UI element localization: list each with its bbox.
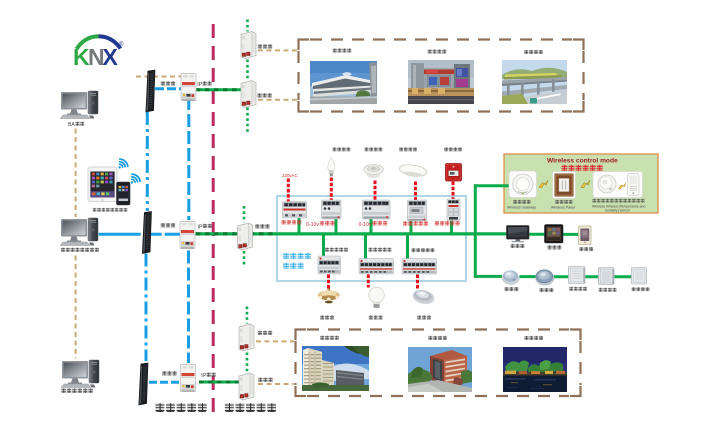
svg-text:0-10v: 0-10v	[359, 222, 372, 228]
svg-text:Wireless control mode: Wireless control mode	[547, 158, 618, 165]
svg-text:IP: IP	[198, 224, 203, 230]
svg-text:X: X	[103, 44, 119, 70]
svg-text:humidity) sensor: humidity) sensor	[605, 208, 631, 212]
svg-text:IP: IP	[201, 373, 206, 379]
svg-text:0-10v: 0-10v	[306, 222, 319, 228]
svg-text:Wireless Gateway: Wireless Gateway	[507, 206, 536, 210]
svg-text:Wireless Panel: Wireless Panel	[551, 206, 575, 210]
svg-text:IP: IP	[197, 82, 202, 88]
svg-text:BA: BA	[68, 122, 75, 128]
svg-text:®: ®	[119, 41, 124, 48]
svg-text:220vAC: 220vAC	[282, 173, 298, 178]
